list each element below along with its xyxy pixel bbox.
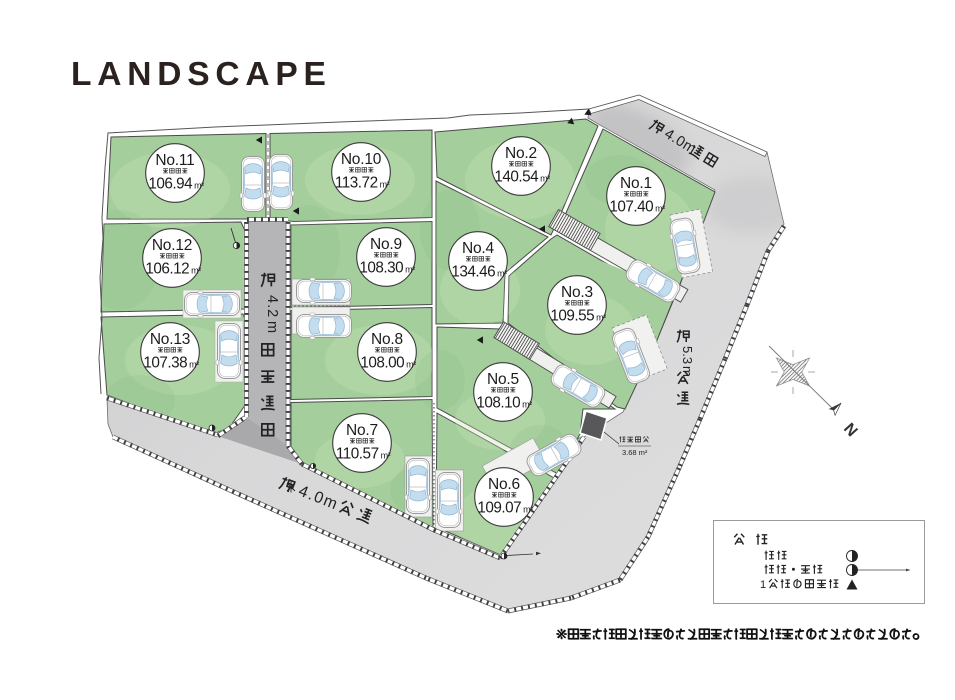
svg-text:No.13: No.13 (150, 331, 190, 348)
svg-text:No.1: No.1 (620, 175, 652, 192)
svg-text:No.8: No.8 (371, 331, 403, 348)
svg-text:No.12: No.12 (152, 237, 192, 254)
svg-text:4.2: 4.2 (264, 295, 280, 318)
svg-text:No.3: No.3 (561, 284, 593, 301)
svg-text:No.7: No.7 (346, 422, 378, 439)
svg-text:m: m (264, 321, 280, 333)
svg-text:No.4: No.4 (462, 240, 495, 257)
svg-text:LANDSCAPE: LANDSCAPE (71, 56, 332, 93)
svg-text:No.5: No.5 (487, 371, 519, 388)
svg-text:5.3: 5.3 (680, 346, 695, 364)
svg-text:3.68 m²: 3.68 m² (622, 448, 648, 457)
svg-text:No.6: No.6 (488, 476, 520, 493)
svg-text:No.10: No.10 (341, 151, 382, 168)
svg-text:1: 1 (760, 579, 766, 591)
svg-text:No.11: No.11 (155, 152, 194, 169)
svg-text:No.9: No.9 (370, 236, 402, 253)
svg-text:No.2: No.2 (505, 145, 537, 162)
